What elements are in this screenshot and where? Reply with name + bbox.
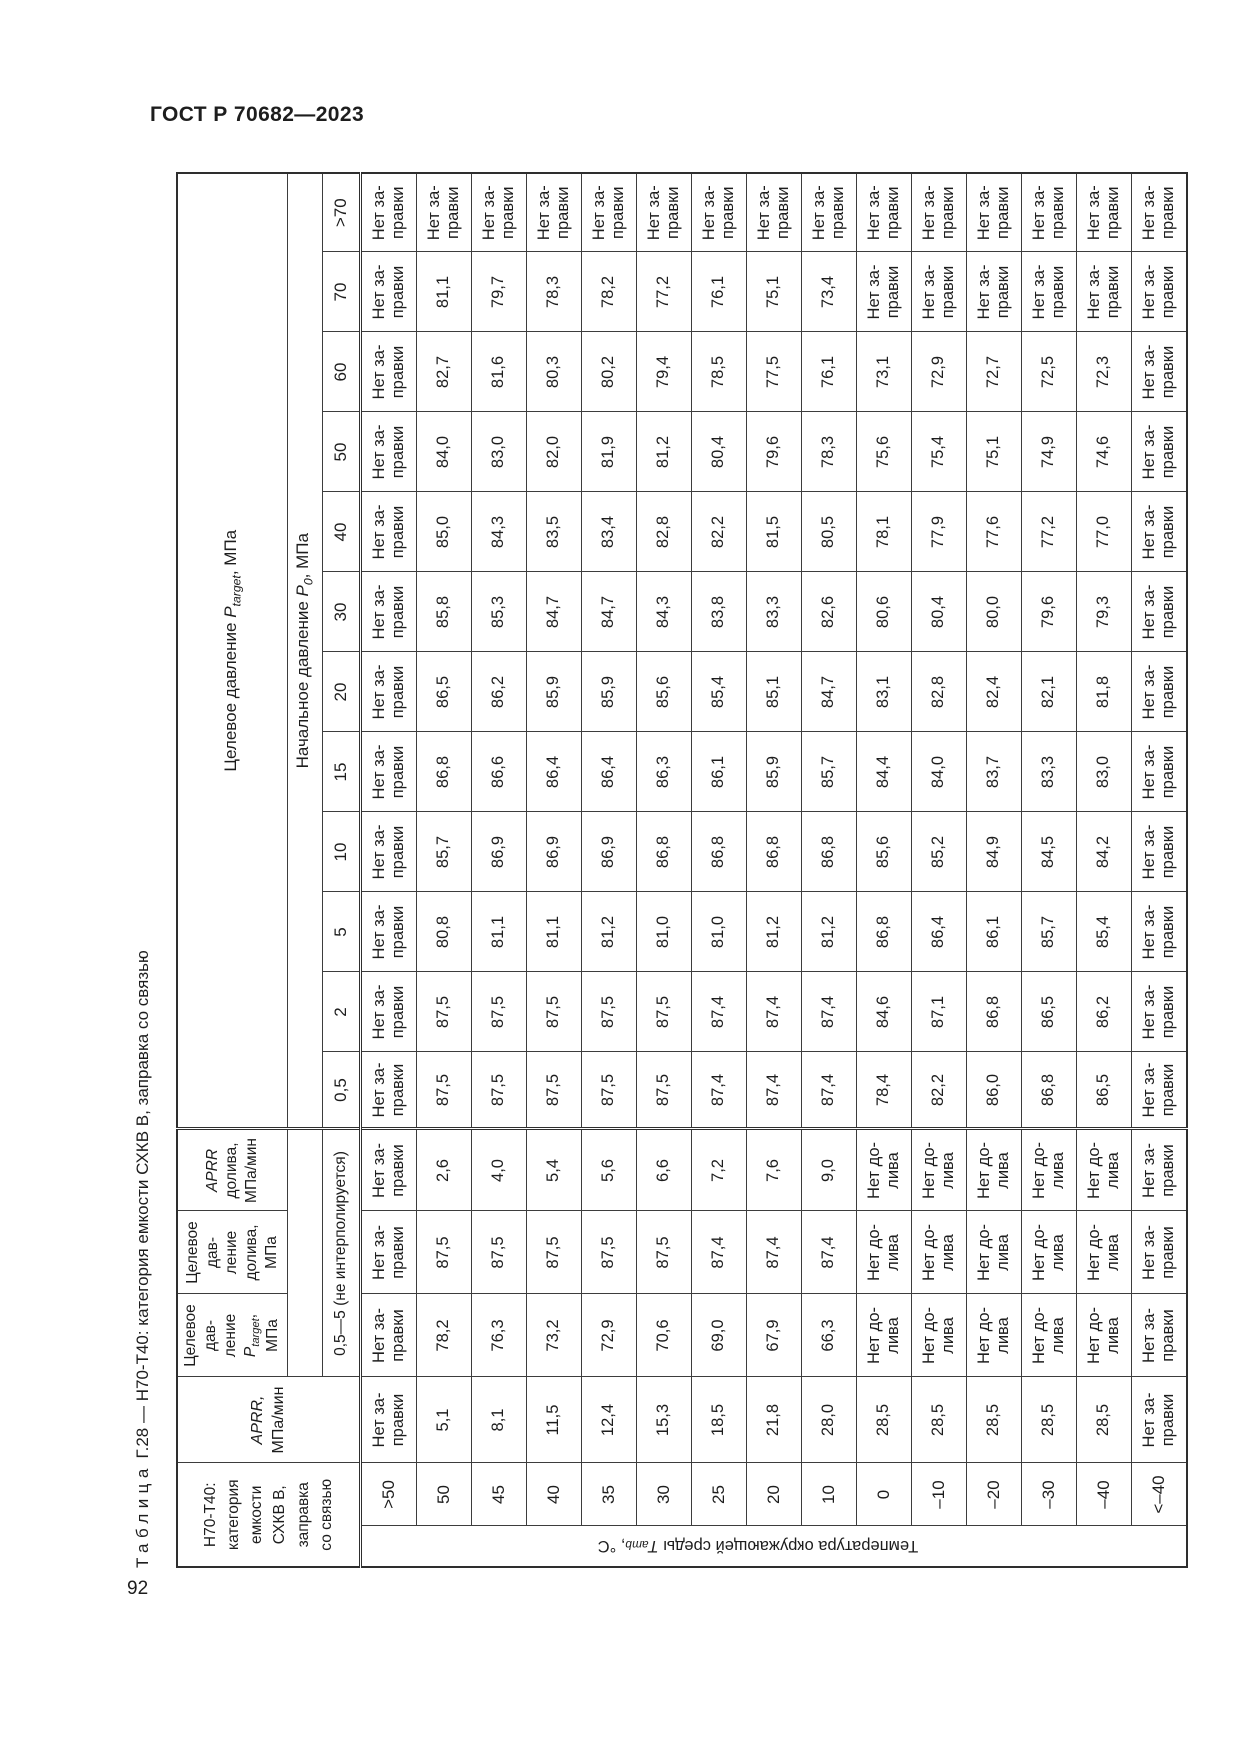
ptarget-value: 72,9 — [581, 1294, 636, 1377]
aprr-value: 15,3 — [636, 1377, 691, 1463]
header-row-1: Н70-Т40: категория емкости СХКВ В, запра… — [177, 173, 287, 1567]
p0-value: 77,6 — [966, 492, 1021, 572]
p0-value: Нет за- правки — [1131, 1052, 1187, 1129]
group-target-unit: , МПа — [221, 530, 240, 575]
p0-value: 84,3 — [636, 572, 691, 652]
temperature-value: 45 — [471, 1463, 526, 1526]
p0-value: Нет за- правки — [416, 173, 471, 252]
p0-value: Нет за- правки — [581, 173, 636, 252]
table-row: 2021,867,987,47,687,487,481,286,885,985,… — [746, 173, 801, 1567]
p0-value: 87,5 — [636, 1052, 691, 1129]
p0-tick: >70 — [322, 173, 360, 252]
ptarget-doliva-value: Нет до- лива — [966, 1211, 1021, 1294]
p0-value: 81,5 — [746, 492, 801, 572]
p0-value: Нет за- правки — [911, 173, 966, 252]
p0-value: 83,7 — [966, 732, 1021, 812]
ptarget-value: 73,2 — [526, 1294, 581, 1377]
table-row: 3512,472,987,55,687,587,581,286,986,485,… — [581, 173, 636, 1567]
aprr-doliva-value: 6,6 — [636, 1129, 691, 1211]
p0-value: 85,8 — [416, 572, 471, 652]
aprr-value: Нет за- правки — [1131, 1377, 1187, 1463]
p0-value: 80,3 — [526, 332, 581, 412]
p0-value: 87,4 — [801, 972, 856, 1052]
p-symbol: P — [242, 1347, 259, 1357]
p0-value: 87,4 — [691, 972, 746, 1052]
p0-value: 81,2 — [581, 892, 636, 972]
aprr-value: 11,5 — [526, 1377, 581, 1463]
temperature-value: 30 — [636, 1463, 691, 1526]
aprr-doliva-value: 9,0 — [801, 1129, 856, 1211]
p0-value: Нет за- правки — [801, 173, 856, 252]
ptarget-value: 69,0 — [691, 1294, 746, 1377]
p0-value: 86,8 — [416, 732, 471, 812]
p0-value: 86,8 — [966, 972, 1021, 1052]
p0-tick: 40 — [322, 492, 360, 572]
aprr-doliva-value: 7,6 — [746, 1129, 801, 1211]
p0-value: Нет за- правки — [1021, 252, 1076, 332]
table-row: Температура окружающей среды Tamb, °C>50… — [360, 173, 416, 1567]
p0-value: 87,5 — [416, 1052, 471, 1129]
temperature-value: –10 — [911, 1463, 966, 1526]
p0-value: Нет за- правки — [360, 652, 416, 732]
p0-value: Нет за- правки — [360, 252, 416, 332]
p0-value: Нет за- правки — [360, 812, 416, 892]
ptarget-value: Нет за- правки — [1131, 1294, 1187, 1377]
p0-value: 83,3 — [1021, 732, 1076, 812]
temperature-value: <–40 — [1131, 1463, 1187, 1526]
temperature-axis-cell: Температура окружающей среды Tamb, °C — [360, 1526, 1187, 1567]
aprr-value: 28,5 — [966, 1377, 1021, 1463]
p0-value: Нет за- правки — [856, 173, 911, 252]
p0-value: Нет за- правки — [1131, 572, 1187, 652]
ptarget-doliva-value: Нет до- лива — [1076, 1211, 1131, 1294]
p0-value: Нет за- правки — [1131, 652, 1187, 732]
p0-value: 78,4 — [856, 1052, 911, 1129]
p0-value: 80,4 — [691, 412, 746, 492]
p0-value: Нет за- правки — [1131, 332, 1187, 412]
aprr-doliva-value: 5,6 — [581, 1129, 636, 1211]
aprr-value: 28,0 — [801, 1377, 856, 1463]
p0-value: Нет за- правки — [360, 572, 416, 652]
p0-value: 81,2 — [746, 892, 801, 972]
ptarget-doliva-value: 87,5 — [581, 1211, 636, 1294]
aprr-doliva-value: Нет до- лива — [856, 1129, 911, 1211]
p0-value: 87,5 — [471, 1052, 526, 1129]
p0-value: Нет за- правки — [360, 332, 416, 412]
p0-value: 86,9 — [581, 812, 636, 892]
p0-value: 87,4 — [746, 1052, 801, 1129]
p0-value: 78,2 — [581, 252, 636, 332]
p0-value: 84,9 — [966, 812, 1021, 892]
p0-value: 86,4 — [911, 892, 966, 972]
ptarget-doliva-lines: Целевое дав- ление долива, МПа — [184, 1221, 280, 1284]
aprr-value: 8,1 — [471, 1377, 526, 1463]
ptarget-doliva-value: 87,4 — [746, 1211, 801, 1294]
p0-tick: 2 — [322, 972, 360, 1052]
p0-value: Нет за- правки — [966, 173, 1021, 252]
p0-value: 85,7 — [1021, 892, 1076, 972]
p0-value: 86,8 — [856, 892, 911, 972]
table-row: <–40Нет за- правкиНет за- правкиНет за- … — [1131, 173, 1187, 1567]
ptarget-unit: МПа — [263, 1295, 283, 1377]
p0-value: 77,0 — [1076, 492, 1131, 572]
aprr-column-header: APRR, МПа/мин — [177, 1377, 360, 1463]
temperature-value: –40 — [1076, 1463, 1131, 1526]
p0-value: 86,9 — [526, 812, 581, 892]
p0-value: Нет за- правки — [1131, 812, 1187, 892]
aprr-value: 28,5 — [1021, 1377, 1076, 1463]
ptarget-value: 78,2 — [416, 1294, 471, 1377]
p0-value: 86,2 — [1076, 972, 1131, 1052]
p0-value: 87,1 — [911, 972, 966, 1052]
p0-value: 84,7 — [801, 652, 856, 732]
p0-value: 73,4 — [801, 252, 856, 332]
temperature-value: 20 — [746, 1463, 801, 1526]
aprr-value: 21,8 — [746, 1377, 801, 1463]
p0-value: Нет за- правки — [966, 252, 1021, 332]
caption-word: Таблица — [133, 1463, 152, 1568]
p0-value: 78,3 — [526, 252, 581, 332]
p0-value: 80,5 — [801, 492, 856, 572]
p0-value: 73,1 — [856, 332, 911, 412]
p0-value: 84,3 — [471, 492, 526, 572]
p0-value: 86,8 — [691, 812, 746, 892]
p0-value: 85,3 — [471, 572, 526, 652]
p0-value: 82,2 — [911, 1052, 966, 1129]
p0-value: 75,1 — [966, 412, 1021, 492]
aprr-doliva-value: Нет до- лива — [1021, 1129, 1076, 1211]
p0-value: Нет за- правки — [1131, 732, 1187, 812]
header-row-3: 0,5—5 (не интерполируется) 0,5 2 5 10 15… — [322, 173, 360, 1567]
p0-value: Нет за- правки — [746, 173, 801, 252]
p0-value: 79,6 — [1021, 572, 1076, 652]
p0-value: 85,9 — [746, 732, 801, 812]
group-target-symbol: P — [221, 606, 240, 617]
p0-value: 86,9 — [471, 812, 526, 892]
p0-value: 84,0 — [911, 732, 966, 812]
group-target-subscript: target — [229, 575, 243, 606]
p0-tick: 50 — [322, 412, 360, 492]
ptarget-group-header: Целевое давление Ptarget, МПа — [177, 173, 287, 1129]
p0-value: 78,1 — [856, 492, 911, 572]
p0-value: 77,2 — [636, 252, 691, 332]
ptarget-doliva-value: Нет до- лива — [1021, 1211, 1076, 1294]
caption-number: Г.28 — [133, 1428, 152, 1459]
p-comma: , — [242, 1314, 259, 1318]
p0-value: 87,5 — [636, 972, 691, 1052]
data-table: Н70-Т40: категория емкости СХКВ В, запра… — [176, 172, 1188, 1568]
p0-value: 84,0 — [416, 412, 471, 492]
table-row: –1028,5Нет до- ливаНет до- ливаНет до- л… — [911, 173, 966, 1567]
p0-group-header: Начальное давление P0, МПа — [287, 173, 322, 1129]
aprr-doliva-column-header: APRR долива, МПа/мин — [177, 1129, 287, 1211]
aprr-symbol: APRR, — [247, 1378, 269, 1463]
p0-value: 86,8 — [801, 812, 856, 892]
aprr-value: 28,5 — [1076, 1377, 1131, 1463]
temperature-value: 25 — [691, 1463, 746, 1526]
ptarget-doliva-column-header: Целевое дав- ление долива, МПа — [177, 1211, 287, 1294]
aprr-value: 18,5 — [691, 1377, 746, 1463]
table-row: –2028,5Нет до- ливаНет до- ливаНет до- л… — [966, 173, 1021, 1567]
p0-value: Нет за- правки — [1131, 252, 1187, 332]
p0-value: 87,5 — [526, 972, 581, 1052]
aprr-doliva-symbol: APRR — [203, 1131, 223, 1211]
aprr-doliva-value: 5,4 — [526, 1129, 581, 1211]
p0-value: 82,8 — [911, 652, 966, 732]
p0-value: Нет за- правки — [1076, 252, 1131, 332]
ptarget-doliva-value: 87,4 — [801, 1211, 856, 1294]
p0-value: 75,1 — [746, 252, 801, 332]
p0-value: 82,4 — [966, 652, 1021, 732]
p0-value: 77,2 — [1021, 492, 1076, 572]
table-row: 4011,573,287,55,487,587,581,186,986,485,… — [526, 173, 581, 1567]
table-row: 505,178,287,52,687,587,580,885,786,886,5… — [416, 173, 471, 1567]
ptarget-doliva-value: Нет до- лива — [911, 1211, 966, 1294]
p0-value: 83,0 — [1076, 732, 1131, 812]
ptarget-doliva-value: Нет до- лива — [856, 1211, 911, 1294]
p0-value: 74,6 — [1076, 412, 1131, 492]
p0-tick: 30 — [322, 572, 360, 652]
ptarget-value: 70,6 — [636, 1294, 691, 1377]
p0-value: 77,5 — [746, 332, 801, 412]
ptarget-doliva-value: Нет за- правки — [360, 1211, 416, 1294]
p0-value: 83,0 — [471, 412, 526, 492]
p0-value: 72,3 — [1076, 332, 1131, 412]
temperature-value: 0 — [856, 1463, 911, 1526]
temperature-value: 40 — [526, 1463, 581, 1526]
p0-value: 86,6 — [471, 732, 526, 812]
p0-value: 87,5 — [416, 972, 471, 1052]
ptarget-header-symbol: Ptarget, — [241, 1295, 263, 1377]
p0-tick: 0,5 — [322, 1052, 360, 1129]
p0-value: 84,5 — [1021, 812, 1076, 892]
table-row: 1028,066,387,49,087,487,481,286,885,784,… — [801, 173, 856, 1567]
p0-value: 84,4 — [856, 732, 911, 812]
p0-value: Нет за- правки — [1131, 412, 1187, 492]
p0-value: 86,5 — [416, 652, 471, 732]
page-number: 92 — [127, 1578, 148, 1600]
group-p0-text: Начальное давление — [293, 596, 312, 768]
p0-value: 81,1 — [526, 892, 581, 972]
p0-tick: 15 — [322, 732, 360, 812]
p0-value: Нет за- правки — [471, 173, 526, 252]
p0-value: Нет за- правки — [1021, 173, 1076, 252]
p0-value: 86,2 — [471, 652, 526, 732]
ptarget-value: 76,3 — [471, 1294, 526, 1377]
p0-value: Нет за- правки — [360, 492, 416, 572]
ptarget-header-lines: Целевое дав- ление — [182, 1304, 239, 1367]
p0-value: 82,0 — [526, 412, 581, 492]
group-p0-unit: , МПа — [293, 533, 312, 578]
p0-value: 86,1 — [966, 892, 1021, 972]
p0-value: 72,5 — [1021, 332, 1076, 412]
aprr-value: 12,4 — [581, 1377, 636, 1463]
p0-value: Нет за- правки — [360, 892, 416, 972]
aprr-doliva-lines: долива, МПа/мин — [222, 1131, 262, 1211]
ptarget-value: Нет до- лива — [911, 1294, 966, 1377]
p0-value: 85,4 — [691, 652, 746, 732]
p0-value: 83,4 — [581, 492, 636, 572]
aprr-doliva-value: Нет до- лива — [911, 1129, 966, 1211]
p0-value: Нет за- правки — [360, 1052, 416, 1129]
table-row: 028,5Нет до- ливаНет до- ливаНет до- лив… — [856, 173, 911, 1567]
p0-value: 86,4 — [581, 732, 636, 812]
p0-value: 80,6 — [856, 572, 911, 652]
aprr-value: 28,5 — [911, 1377, 966, 1463]
caption-separator: — — [133, 1406, 152, 1423]
p0-value: 87,4 — [691, 1052, 746, 1129]
ptarget-value: Нет до- лива — [1076, 1294, 1131, 1377]
p0-value: Нет за- правки — [360, 972, 416, 1052]
ptarget-value: 66,3 — [801, 1294, 856, 1377]
p0-value: Нет за- правки — [360, 412, 416, 492]
table-row: –4028,5Нет до- ливаНет до- ливаНет до- л… — [1076, 173, 1131, 1567]
p0-value: 84,7 — [526, 572, 581, 652]
p0-value: 83,1 — [856, 652, 911, 732]
ptarget-doliva-value: 87,5 — [471, 1211, 526, 1294]
p0-value: 87,4 — [746, 972, 801, 1052]
aprr-doliva-value: Нет до- лива — [1076, 1129, 1131, 1211]
ptarget-doliva-value: 87,5 — [416, 1211, 471, 1294]
p0-value: 86,5 — [1076, 1052, 1131, 1129]
doc-code: ГОСТ Р 70682—2023 — [150, 103, 364, 127]
p0-value: 82,7 — [416, 332, 471, 412]
table-row: 458,176,387,54,087,587,581,186,986,686,2… — [471, 173, 526, 1567]
p0-value: 82,8 — [636, 492, 691, 572]
p0-tick: 60 — [322, 332, 360, 412]
caption-title: Н70-Т40: категория емкости СХКВ В, запра… — [133, 950, 152, 1401]
p0-value: 85,4 — [1076, 892, 1131, 972]
table-body: Температура окружающей среды Tamb, °C>50… — [360, 173, 1187, 1567]
p0-value: 81,9 — [581, 412, 636, 492]
p0-value: 84,7 — [581, 572, 636, 652]
group-p0-symbol: P — [293, 585, 312, 596]
p0-value: 81,1 — [471, 892, 526, 972]
empty-header-cell — [287, 1129, 322, 1377]
group-target-text: Целевое давление — [221, 618, 240, 772]
p0-value: 82,1 — [1021, 652, 1076, 732]
p0-value: 79,6 — [746, 412, 801, 492]
aprr-unit: МПа/мин — [268, 1378, 290, 1463]
p0-value: 85,2 — [911, 812, 966, 892]
p0-value: 76,1 — [691, 252, 746, 332]
temperature-value: 35 — [581, 1463, 636, 1526]
p0-value: Нет за- правки — [856, 252, 911, 332]
p0-value: Нет за- правки — [636, 173, 691, 252]
ptarget-doliva-value: 87,5 — [636, 1211, 691, 1294]
p0-value: 84,6 — [856, 972, 911, 1052]
p0-value: 81,0 — [636, 892, 691, 972]
p-subscript: target — [250, 1318, 262, 1347]
p0-value: 81,2 — [636, 412, 691, 492]
p0-value: 85,9 — [581, 652, 636, 732]
p0-value: 85,9 — [526, 652, 581, 732]
p0-value: Нет за- правки — [1131, 173, 1187, 252]
p0-value: Нет за- правки — [360, 173, 416, 252]
p0-value: 87,5 — [471, 972, 526, 1052]
p0-value: 79,7 — [471, 252, 526, 332]
aprr-doliva-value: Нет за- правки — [1131, 1129, 1187, 1211]
aprr-doliva-value: 2,6 — [416, 1129, 471, 1211]
ptarget-value: Нет до- лива — [1021, 1294, 1076, 1377]
p0-value: 85,1 — [746, 652, 801, 732]
p0-value: 86,0 — [966, 1052, 1021, 1129]
p0-value: 87,5 — [526, 1052, 581, 1129]
table-row: 2518,569,087,47,287,487,481,086,886,185,… — [691, 173, 746, 1567]
ptarget-value: Нет до- лива — [966, 1294, 1021, 1377]
p0-value: 85,6 — [856, 812, 911, 892]
ptarget-doliva-value: Нет за- правки — [1131, 1211, 1187, 1294]
p0-value: 80,2 — [581, 332, 636, 412]
p0-value: 75,4 — [911, 412, 966, 492]
group-p0-subscript: 0 — [302, 578, 316, 585]
p0-value: 72,7 — [966, 332, 1021, 412]
range-note-header: 0,5—5 (не интерполируется) — [322, 1129, 360, 1377]
p0-value: Нет за- правки — [1131, 492, 1187, 572]
p0-value: 85,0 — [416, 492, 471, 572]
temperature-value: 10 — [801, 1463, 856, 1526]
p0-value: Нет за- правки — [1076, 173, 1131, 252]
p0-value: 86,3 — [636, 732, 691, 812]
aprr-doliva-value: 7,2 — [691, 1129, 746, 1211]
p0-tick: 10 — [322, 812, 360, 892]
p0-value: 78,5 — [691, 332, 746, 412]
p0-value: 83,5 — [526, 492, 581, 572]
p0-value: 86,8 — [746, 812, 801, 892]
p0-value: 79,4 — [636, 332, 691, 412]
p0-value: 74,9 — [1021, 412, 1076, 492]
temperature-value: –30 — [1021, 1463, 1076, 1526]
p0-value: 82,6 — [801, 572, 856, 652]
p0-value: 81,2 — [801, 892, 856, 972]
temperature-axis-label: Температура окружающей среды Tamb, °C — [362, 1526, 1154, 1566]
corner-header: Н70-Т40: категория емкости СХКВ В, запра… — [177, 1463, 360, 1567]
aprr-value: 5,1 — [416, 1377, 471, 1463]
p0-value: 80,8 — [416, 892, 471, 972]
ptarget-doliva-value: 87,5 — [526, 1211, 581, 1294]
p0-value: Нет за- правки — [911, 252, 966, 332]
p0-value: 86,8 — [636, 812, 691, 892]
temperature-value: –20 — [966, 1463, 1021, 1526]
p0-value: 87,4 — [801, 1052, 856, 1129]
temperature-value: >50 — [360, 1463, 416, 1526]
p0-value: 83,3 — [746, 572, 801, 652]
p0-value: Нет за- правки — [1131, 892, 1187, 972]
document-page: ГОСТ Р 70682—2023 92 Таблица Г.28 — Н70-… — [0, 0, 1241, 1754]
p0-value: Нет за- правки — [691, 173, 746, 252]
aprr-doliva-value: 4,0 — [471, 1129, 526, 1211]
table-caption: Таблица Г.28 — Н70-Т40: категория емкост… — [133, 176, 155, 1568]
p0-value: 86,5 — [1021, 972, 1076, 1052]
ptarget-doliva-value: 87,4 — [691, 1211, 746, 1294]
p0-value: 83,8 — [691, 572, 746, 652]
p0-value: 82,2 — [691, 492, 746, 572]
p0-value: 86,1 — [691, 732, 746, 812]
p0-value: 81,6 — [471, 332, 526, 412]
p0-value: Нет за- правки — [526, 173, 581, 252]
p0-value: 84,2 — [1076, 812, 1131, 892]
p0-value: 81,1 — [416, 252, 471, 332]
p0-value: 72,9 — [911, 332, 966, 412]
aprr-doliva-value: Нет до- лива — [966, 1129, 1021, 1211]
aprr-value: Нет за- правки — [360, 1377, 416, 1463]
ptarget-value: 67,9 — [746, 1294, 801, 1377]
p0-value: 87,5 — [581, 1052, 636, 1129]
p0-tick: 70 — [322, 252, 360, 332]
p0-value: 76,1 — [801, 332, 856, 412]
p0-value: 86,4 — [526, 732, 581, 812]
p0-tick: 5 — [322, 892, 360, 972]
